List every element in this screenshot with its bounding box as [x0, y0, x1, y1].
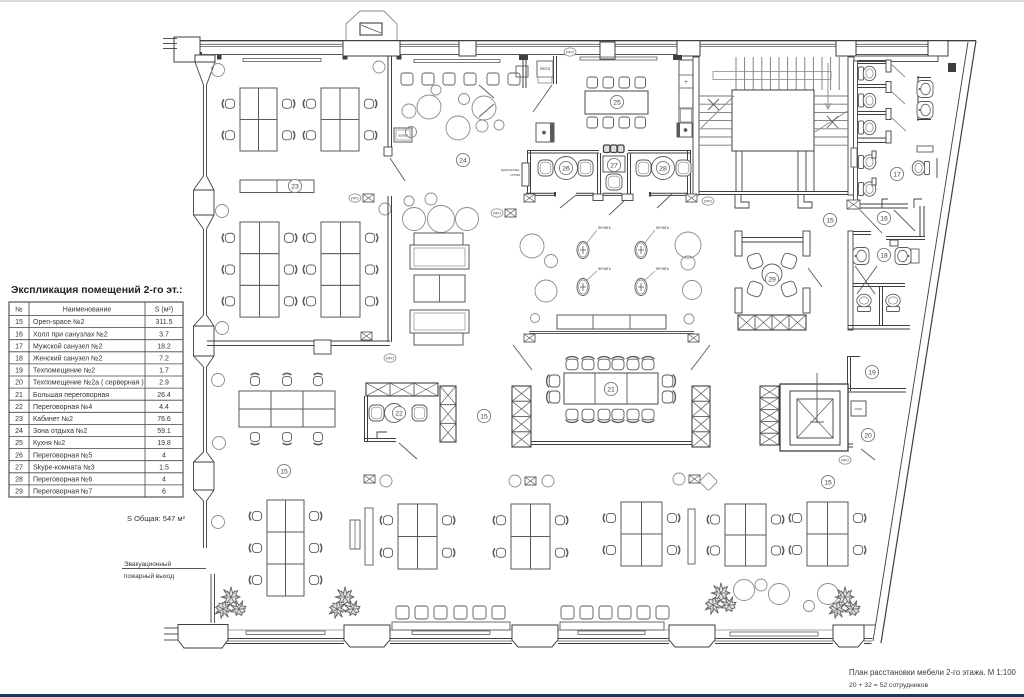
svg-text:76.6: 76.6	[157, 416, 171, 423]
svg-text:серв.: серв.	[855, 407, 863, 411]
svg-text:Большая переговорная: Большая переговорная	[33, 392, 109, 399]
svg-text:печать: печать	[656, 266, 670, 271]
svg-text:26.4: 26.4	[157, 392, 171, 399]
svg-text:15: 15	[280, 468, 288, 475]
svg-text:№: №	[15, 307, 23, 314]
svg-text:22: 22	[395, 410, 403, 417]
svg-text:6: 6	[162, 489, 166, 496]
svg-text:20 + 32 = 52 сотрудников: 20 + 32 = 52 сотрудников	[849, 682, 929, 689]
svg-text:ИРО: ИРО	[351, 196, 360, 201]
svg-text:Наименование: Наименование	[63, 307, 112, 314]
svg-text:4: 4	[162, 477, 166, 484]
svg-text:21: 21	[15, 392, 23, 399]
svg-text:19: 19	[15, 368, 23, 375]
svg-text:Open-space №2: Open-space №2	[33, 319, 85, 326]
svg-text:24: 24	[15, 428, 23, 435]
svg-text:печать: печать	[598, 266, 612, 271]
svg-text:20: 20	[864, 432, 872, 439]
svg-text:стенка: стенка	[510, 173, 520, 177]
svg-text:ИРО: ИРО	[386, 356, 395, 361]
svg-text:2.9: 2.9	[159, 380, 169, 387]
svg-text:20: 20	[15, 380, 23, 387]
svg-text:16: 16	[880, 215, 888, 222]
svg-text:Переговорная №6: Переговорная №6	[33, 477, 92, 484]
svg-text:23: 23	[291, 183, 299, 190]
svg-text:59.1: 59.1	[157, 428, 171, 435]
svg-text:22: 22	[15, 404, 23, 411]
svg-text:4: 4	[162, 452, 166, 459]
svg-text:15: 15	[826, 217, 834, 224]
svg-text:Техпомещение №2: Техпомещение №2	[33, 368, 95, 375]
svg-text:26: 26	[15, 452, 23, 459]
svg-text:24: 24	[459, 157, 467, 164]
svg-text:29: 29	[768, 276, 776, 283]
svg-text:ИРО: ИРО	[841, 458, 850, 463]
svg-text:15: 15	[480, 413, 488, 420]
svg-text:Техпомещение №2а ( серверная ): Техпомещение №2а ( серверная )	[33, 380, 144, 387]
svg-text:Холл при санузлах №2: Холл при санузлах №2	[33, 331, 108, 338]
svg-text:печать: печать	[598, 225, 612, 230]
svg-text:S Общая: 547 м²: S Общая: 547 м²	[127, 514, 186, 523]
svg-text:26: 26	[562, 165, 570, 172]
svg-text:Кухня №2: Кухня №2	[33, 440, 65, 447]
svg-text:План расстановки мебели 2-го э: План расстановки мебели 2-го этажа. М 1:…	[849, 668, 1017, 677]
svg-text:Женский санузел №2: Женский санузел №2	[33, 355, 103, 363]
svg-text:Переговорная №5: Переговорная №5	[33, 452, 92, 459]
svg-text:27: 27	[610, 162, 618, 169]
svg-text:18: 18	[15, 356, 23, 363]
svg-text:Кабинет №2: Кабинет №2	[33, 415, 73, 423]
svg-text:1.5: 1.5	[159, 464, 169, 471]
svg-text:18: 18	[880, 252, 888, 259]
svg-text:шумоизоляц.: шумоизоляц.	[501, 168, 520, 172]
svg-text:пожарный выход: пожарный выход	[124, 572, 174, 580]
svg-text:21: 21	[607, 386, 615, 393]
svg-text:Skype-комната №3: Skype-комната №3	[33, 464, 95, 471]
svg-text:17: 17	[893, 171, 901, 178]
svg-text:4.4: 4.4	[159, 404, 169, 411]
svg-text:25: 25	[613, 99, 621, 106]
svg-text:311.5: 311.5	[156, 319, 173, 326]
svg-text:Переговорная №7: Переговорная №7	[33, 489, 92, 496]
svg-text:3.7: 3.7	[159, 331, 169, 338]
svg-text:печать: печать	[656, 225, 670, 230]
svg-text:7.2: 7.2	[159, 356, 169, 363]
svg-text:16: 16	[15, 331, 23, 338]
svg-text:1.7: 1.7	[159, 368, 169, 375]
svg-text:micro: micro	[540, 66, 551, 71]
svg-text:19.8: 19.8	[157, 440, 171, 447]
svg-text:15: 15	[824, 479, 832, 486]
svg-text:Зона отдыха №2: Зона отдыха №2	[33, 428, 87, 435]
svg-text:27: 27	[15, 464, 23, 471]
svg-text:Мужской санузел №2: Мужской санузел №2	[33, 342, 103, 350]
svg-text:19: 19	[868, 369, 876, 376]
svg-text:15: 15	[15, 319, 23, 326]
svg-text:+: +	[684, 80, 688, 86]
svg-text:Эвакуационный: Эвакуационный	[124, 560, 171, 568]
svg-text:18.2: 18.2	[157, 343, 171, 350]
svg-text:ИРО: ИРО	[493, 211, 502, 216]
svg-text:S (м²): S (м²)	[155, 307, 173, 314]
svg-text:Переговорная №4: Переговорная №4	[33, 404, 92, 411]
svg-text:23: 23	[15, 416, 23, 423]
svg-text:17: 17	[15, 343, 23, 350]
svg-text:ИРО: ИРО	[566, 50, 575, 55]
svg-text:29: 29	[15, 489, 23, 496]
svg-text:ИРО: ИРО	[704, 199, 713, 204]
svg-text:28: 28	[659, 165, 667, 172]
svg-text:Экспликация помещений 2-го эт.: Экспликация помещений 2-го эт.:	[11, 285, 182, 296]
svg-text:28: 28	[15, 477, 23, 484]
svg-text:25: 25	[15, 440, 23, 447]
